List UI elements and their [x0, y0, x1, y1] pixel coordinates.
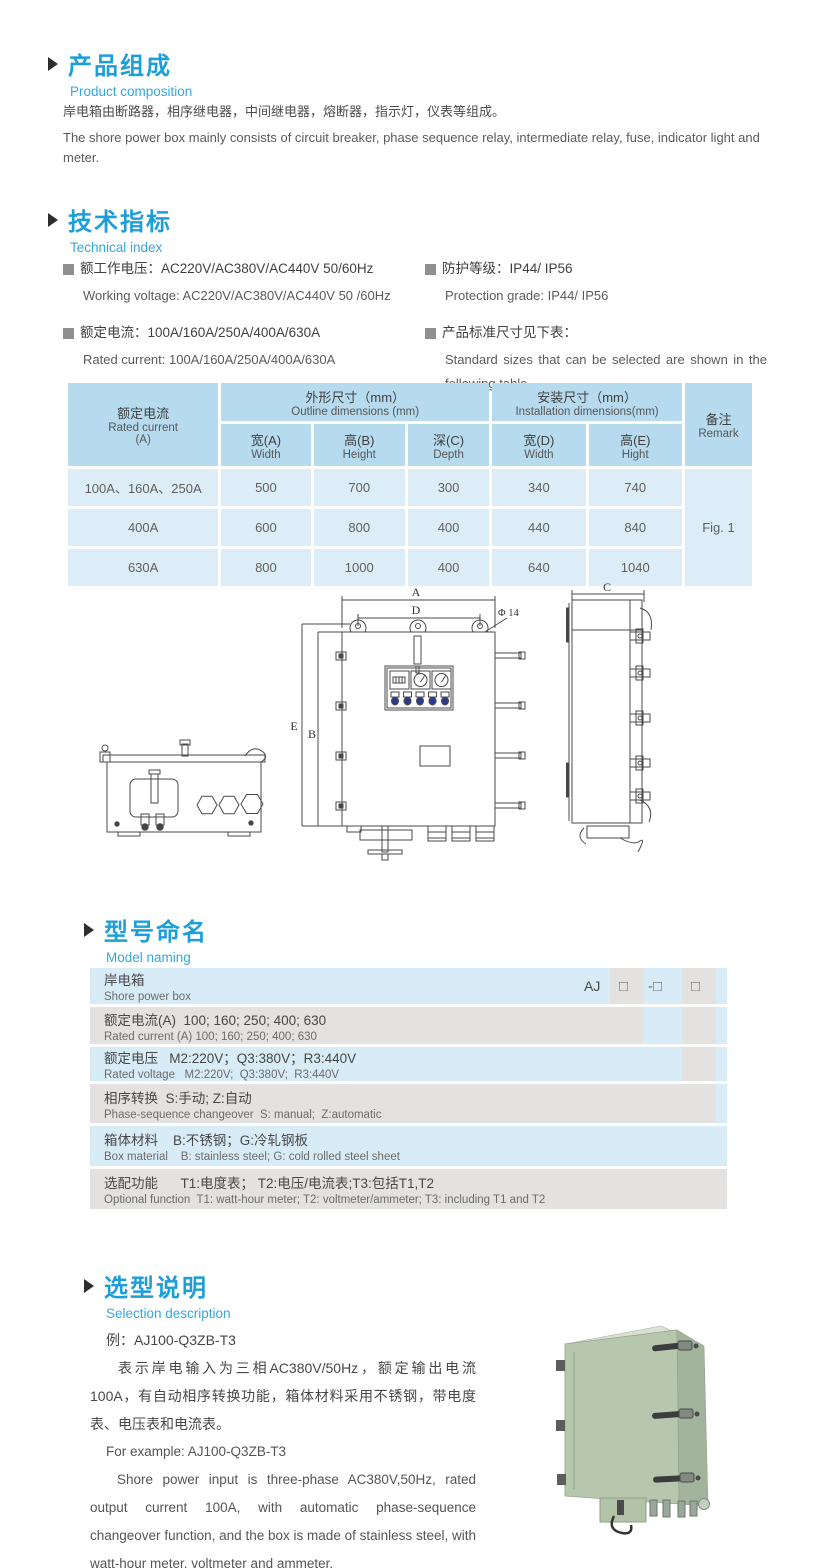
col-header-remark: 备注 Remark: [685, 383, 752, 466]
col-header-rated-current: 额定电流 Rated current (A): [68, 383, 218, 466]
section-arrow-icon: [48, 213, 58, 227]
cell-height: 700: [314, 469, 405, 506]
dim-label-A: A: [412, 585, 421, 599]
section-arrow-icon: [84, 923, 94, 937]
selection-paragraph-en: Shore power input is three-phase AC380V,…: [90, 1466, 476, 1568]
header-en: Outline dimensions (mm): [221, 406, 489, 418]
cell-remark: Fig. 1: [685, 469, 752, 586]
cell-height: 800: [314, 509, 405, 546]
dim-label-E: E: [290, 719, 297, 733]
spec-zh-text: 产品标准尺寸见下表：: [442, 320, 577, 346]
spec-protection-grade: 防护等级：IP44/ IP56 Protection grade: IP44/ …: [425, 256, 770, 308]
spec-bullet-icon: [63, 264, 74, 275]
model-row-rated-current: 额定电流(A) 100; 160; 250; 400; 630 Rated cu…: [90, 1007, 727, 1044]
section-selection-description-header: 选型说明 Selection description: [84, 1268, 231, 1321]
cell-install-hight: 840: [589, 509, 682, 546]
table-row: 100A、160A、250A 500 700 300 340 740 Fig. …: [68, 469, 752, 506]
row-zh: 箱体材料 B:不锈钢；G:冷轧钢板: [104, 1129, 727, 1149]
cell-depth: 300: [408, 469, 489, 506]
section-arrow-icon: [48, 57, 58, 71]
dim-label-C: C: [603, 580, 611, 594]
spec-bullet-icon: [425, 264, 436, 275]
model-row-shore-power-box: 岸电箱 Shore power box AJ □ -□ □: [90, 968, 727, 1004]
col-header-width-d: 宽(D)Width: [492, 424, 585, 466]
model-prefix: AJ: [584, 968, 600, 1004]
outline-drawing-svg: A D Φ 14 E B C: [60, 578, 770, 878]
latches: [630, 629, 650, 803]
row-en: Rated current (A) 100; 160; 250; 400; 63…: [104, 1031, 727, 1043]
section-title-zh: 选型说明: [104, 1268, 208, 1303]
table-row: 400A 600 800 400 440 840: [68, 509, 752, 546]
col-header-height-b: 高(B)Height: [314, 424, 405, 466]
row-zh: 选配功能 T1:电度表； T2:电压/电流表;T3:包括T1,T2: [104, 1172, 727, 1192]
spec-en-text: Protection grade: IP44/ IP56: [445, 284, 767, 308]
dimensions-table: 额定电流 Rated current (A) 外形尺寸（mm） Outline …: [65, 380, 755, 589]
cell-width: 600: [221, 509, 310, 546]
col-header-hight-e: 高(E)Hight: [589, 424, 682, 466]
section-product-composition-header: 产品组成 Product composition: [48, 46, 192, 99]
dim-label-B: B: [308, 727, 316, 741]
row-en: Phase-sequence changeover S: manual; Z:a…: [104, 1109, 727, 1121]
row-en: Box material B: stainless steel; G: cold…: [104, 1151, 727, 1163]
section-title-zh: 产品组成: [68, 46, 172, 81]
cell-install-width: 340: [492, 469, 585, 506]
catalog-page: 产品组成 Product composition 岸电箱由断路器，相序继电器，中…: [0, 0, 830, 1568]
row-zh: 额定电流(A) 100; 160; 250; 400; 630: [104, 1009, 727, 1029]
col-header-width-a: 宽(A)Width: [221, 424, 310, 466]
model-code-box-3: □: [691, 968, 700, 1004]
spec-zh-text: 额工作电压：AC220V/AC380V/AC440V 50/60Hz: [80, 256, 373, 282]
spec-bullet-icon: [63, 328, 74, 339]
spec-working-voltage: 额工作电压：AC220V/AC380V/AC440V 50/60Hz Worki…: [63, 256, 425, 308]
cell-current: 400A: [68, 509, 218, 546]
model-naming-table: 岸电箱 Shore power box AJ □ -□ □ 额定电流(A) 10…: [90, 968, 727, 1212]
technical-drawing: A D Φ 14 E B C: [60, 578, 770, 878]
row-zh: 额定电压 M2:220V；Q3:380V；R3:440V: [104, 1047, 727, 1067]
side-view: [567, 590, 652, 852]
spec-zh-text: 防护等级：IP44/ IP56: [442, 256, 573, 282]
row-en: Optional function T1: watt-hour meter; T…: [104, 1194, 727, 1206]
section-title-zh: 型号命名: [104, 912, 208, 947]
composition-body-zh: 岸电箱由断路器，相序继电器，中间继电器，熔断器，指示灯，仪表等组成。: [63, 102, 763, 122]
section-title-zh: 技术指标: [68, 202, 172, 237]
cell-depth: 400: [408, 509, 489, 546]
model-row-phase-sequence: 相序转换 S:手动; Z:自动 Phase-sequence changeove…: [90, 1084, 727, 1123]
section-title-en: Model naming: [106, 950, 208, 965]
header-zh: 额定电流: [68, 403, 218, 422]
technical-specs: 额工作电压：AC220V/AC380V/AC440V 50/60Hz Worki…: [63, 256, 773, 398]
selection-text-block: 例：AJ100-Q3ZB-T3 表示岸电输入为三相AC380V/50Hz，额定输…: [90, 1326, 476, 1568]
cell-install-width: 440: [492, 509, 585, 546]
header-zh: 外形尺寸（mm）: [221, 387, 489, 406]
product-photo: [540, 1300, 815, 1568]
spec-zh-text: 额定电流：100A/160A/250A/400A/630A: [80, 320, 320, 346]
header-en: Rated current: [68, 422, 218, 434]
col-group-outline: 外形尺寸（mm） Outline dimensions (mm): [221, 383, 489, 421]
section-model-naming-header: 型号命名 Model naming: [84, 912, 208, 965]
header-en: Remark: [685, 428, 752, 440]
bottom-view: [100, 740, 266, 836]
header-unit: (A): [68, 434, 218, 446]
model-code-box-2: -□: [648, 968, 662, 1004]
row-zh: 相序转换 S:手动; Z:自动: [104, 1087, 727, 1107]
col-header-depth-c: 深(C)Depth: [408, 424, 489, 466]
selection-paragraph-zh: 表示岸电输入为三相AC380V/50Hz，额定输出电流100A，有自动相序转换功…: [90, 1354, 476, 1438]
cell-current: 100A、160A、250A: [68, 469, 218, 506]
spec-en-text: Working voltage: AC220V/AC380V/AC440V 50…: [83, 284, 405, 308]
section-title-en: Product composition: [70, 84, 192, 99]
selection-example-en: For example: AJ100-Q3ZB-T3: [106, 1438, 476, 1466]
spec-en-text: Rated current: 100A/160A/250A/400A/630A: [83, 348, 405, 372]
row-en: Shore power box: [104, 991, 727, 1003]
section-title-en: Selection description: [106, 1306, 231, 1321]
front-view: [302, 596, 525, 860]
section-title-en: Technical index: [70, 240, 172, 255]
dim-label-phi14: Φ 14: [498, 608, 520, 619]
model-row-optional-function: 选配功能 T1:电度表； T2:电压/电流表;T3:包括T1,T2 Option…: [90, 1169, 727, 1209]
row-zh: 岸电箱: [104, 969, 727, 989]
header-en: Installation dimensions(mm): [492, 406, 682, 418]
model-row-box-material: 箱体材料 B:不锈钢；G:冷轧钢板 Box material B: stainl…: [90, 1126, 727, 1166]
header-zh: 安装尺寸（mm）: [492, 387, 682, 406]
cabinet-illustration-svg: [540, 1300, 815, 1566]
model-code-box-1: □: [619, 968, 628, 1004]
spec-bullet-icon: [425, 328, 436, 339]
selection-example-zh: 例：AJ100-Q3ZB-T3: [106, 1326, 476, 1354]
model-row-rated-voltage: 额定电压 M2:220V；Q3:380V；R3:440V Rated volta…: [90, 1047, 727, 1081]
col-group-installation: 安装尺寸（mm） Installation dimensions(mm): [492, 383, 682, 421]
cell-width: 500: [221, 469, 310, 506]
section-arrow-icon: [84, 1279, 94, 1293]
section-technical-index-header: 技术指标 Technical index: [48, 202, 172, 255]
header-zh: 备注: [685, 409, 752, 428]
cell-install-hight: 740: [589, 469, 682, 506]
dim-label-D: D: [412, 603, 421, 617]
composition-body-en: The shore power box mainly consists of c…: [63, 128, 773, 167]
row-en: Rated voltage M2:220V; Q3:380V; R3:440V: [104, 1069, 727, 1081]
